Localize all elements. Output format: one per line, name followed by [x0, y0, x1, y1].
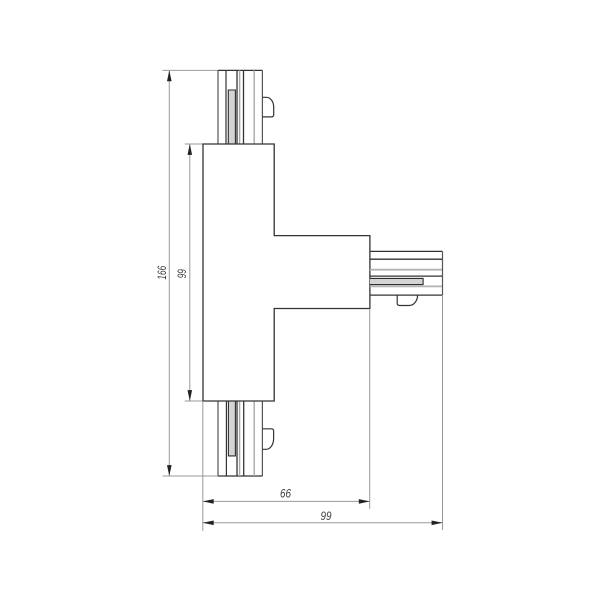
svg-text:166: 166 [157, 265, 169, 279]
svg-text:99: 99 [177, 269, 189, 279]
svg-text:99: 99 [321, 511, 333, 523]
svg-text:66: 66 [280, 489, 292, 501]
